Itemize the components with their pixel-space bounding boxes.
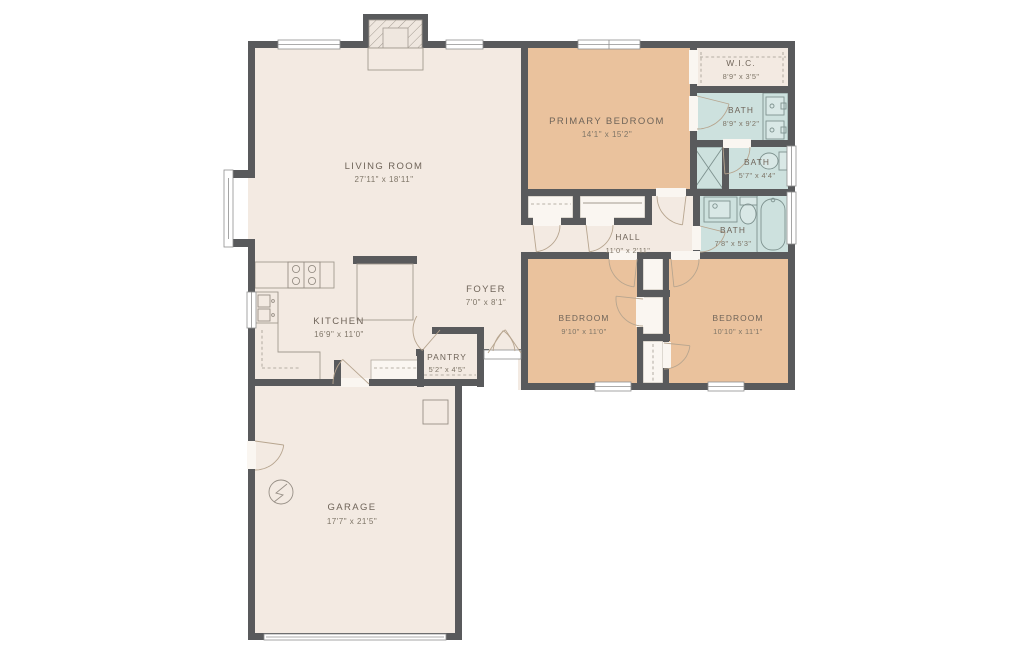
primary-bedroom-dims: 14'1" x 15'2"	[582, 130, 632, 139]
foyer-label: FOYER	[466, 284, 506, 295]
kitchen-dims: 16'9" x 11'0"	[314, 330, 364, 339]
primary-bedroom-label: PRIMARY BEDROOM	[549, 116, 665, 127]
bath-hall-dims: 7'8" x 5'3"	[715, 239, 752, 248]
pantry-label: PANTRY	[427, 352, 467, 362]
porch-recess	[484, 356, 518, 390]
bath-small-label: BATH	[744, 157, 770, 167]
hearth	[368, 48, 423, 70]
bedroom-left-label: BEDROOM	[559, 313, 610, 323]
hall-closet-1	[528, 196, 573, 218]
window-primary-bedroom	[578, 40, 640, 49]
bedroom-left-dims: 9'10" x 11'0"	[561, 327, 606, 336]
bedroom-closet-b	[643, 297, 663, 334]
bedroom-right-label: BEDROOM	[713, 313, 764, 323]
window-kitchen-sink	[247, 292, 256, 328]
window-bedroom-right	[708, 382, 744, 391]
window-bedroom-left	[595, 382, 631, 391]
hall-label: HALL	[615, 232, 640, 242]
wic-label: W.I.C.	[726, 58, 755, 68]
bath-hall-label: BATH	[720, 225, 746, 235]
floor-plan: LIVING ROOM 27'11" x 18'11" KITCHEN 16'9…	[0, 0, 1024, 668]
floor-plan-page: LIVING ROOM 27'11" x 18'11" KITCHEN 16'9…	[0, 0, 1024, 668]
foyer-dims: 7'0" x 8'1"	[466, 298, 506, 307]
hall-dims: 11'0" x 2'11"	[606, 246, 651, 255]
mudroom-closet	[371, 360, 420, 381]
living-room-label: LIVING ROOM	[345, 161, 424, 172]
bedroom-right-dims: 10'10" x 11'1"	[713, 327, 763, 336]
window-bath-small	[787, 146, 796, 186]
bath-primary-label: BATH	[728, 105, 754, 115]
hall-closet-2	[580, 196, 645, 218]
bath-primary-dims: 8'9" x 9'2"	[723, 119, 760, 128]
garage-label: GARAGE	[327, 502, 376, 513]
garage-dims: 17'7" x 21'5"	[327, 517, 377, 526]
window-living-1	[278, 40, 340, 49]
toilet-icon-hall-bath	[740, 197, 757, 224]
bedroom-closet-a	[643, 257, 663, 290]
living-room-dims: 27'11" x 18'11"	[354, 175, 413, 184]
window-living-2	[446, 40, 483, 49]
wic-dims: 8'9" x 3'5"	[723, 72, 760, 81]
fireplace-icon	[363, 14, 428, 70]
bath-small-dims: 5'7" x 4'4"	[739, 171, 776, 180]
window-bath-hall	[787, 192, 796, 244]
garage-door	[264, 634, 446, 640]
pantry-dims: 5'2" x 4'5"	[429, 365, 466, 374]
kitchen-label: KITCHEN	[313, 316, 365, 327]
